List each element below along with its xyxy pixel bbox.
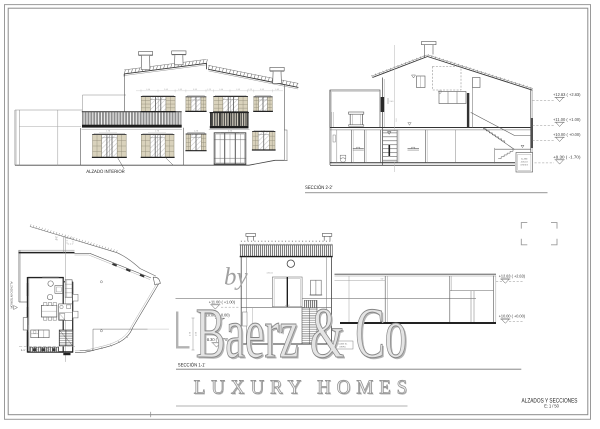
svg-text:ALJIBE: ALJIBE [521,158,528,161]
svg-text:Baerz & Co: Baerz & Co [196,293,407,373]
svg-text:+8.30 ( -1.70): +8.30 ( -1.70) [553,155,581,160]
svg-text:"20": "20" [380,277,384,280]
svg-text:+12.83 ( +2.83): +12.83 ( +2.83) [499,273,526,278]
svg-text:+11.00 ( +1.00): +11.00 ( +1.00) [553,117,581,122]
svg-text:AGUAS: AGUAS [521,161,529,164]
svg-text:SECCIÓN 2-2': SECCIÓN 2-2' [305,184,333,191]
svg-text:+10.00 ( +0.00): +10.00 ( +0.00) [553,132,581,137]
svg-text:LUXURY HOMES: LUXURY HOMES [194,377,414,399]
svg-text:E: 1 / 50: E: 1 / 50 [544,404,559,409]
svg-text:ALZADO INTERIOR: ALZADO INTERIOR [86,169,125,175]
svg-text:2-2': 2-2' [55,236,58,241]
svg-text:by: by [224,264,249,291]
svg-text:ALZADO INTERIOR: ALZADO INTERIOR [10,281,14,309]
svg-text:GRISES: GRISES [521,164,529,167]
svg-text:+10.00 ( +0.00): +10.00 ( +0.00) [499,313,526,318]
svg-text:1-1': 1-1' [21,348,26,352]
svg-text:veletas: veletas [267,272,273,275]
svg-text:+12.83 ( +2.83): +12.83 ( +2.83) [553,92,581,97]
